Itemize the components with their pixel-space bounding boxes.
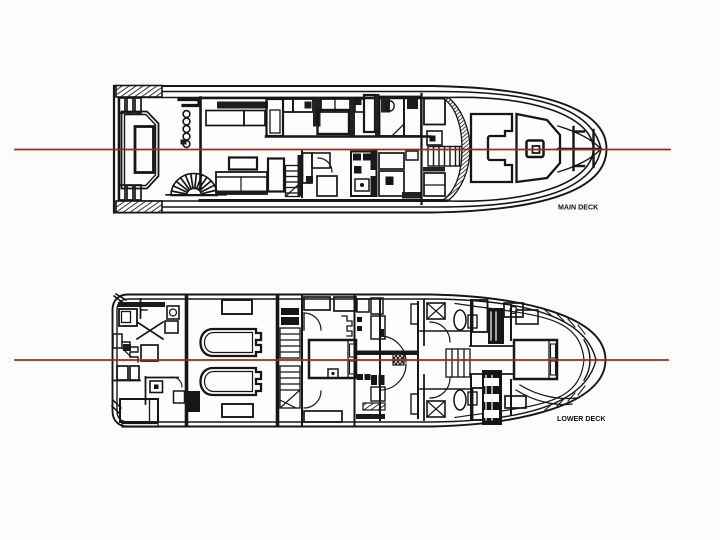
svg-text:LOWER DECK: LOWER DECK: [557, 415, 606, 423]
svg-text:MAIN DECK: MAIN DECK: [558, 204, 599, 212]
